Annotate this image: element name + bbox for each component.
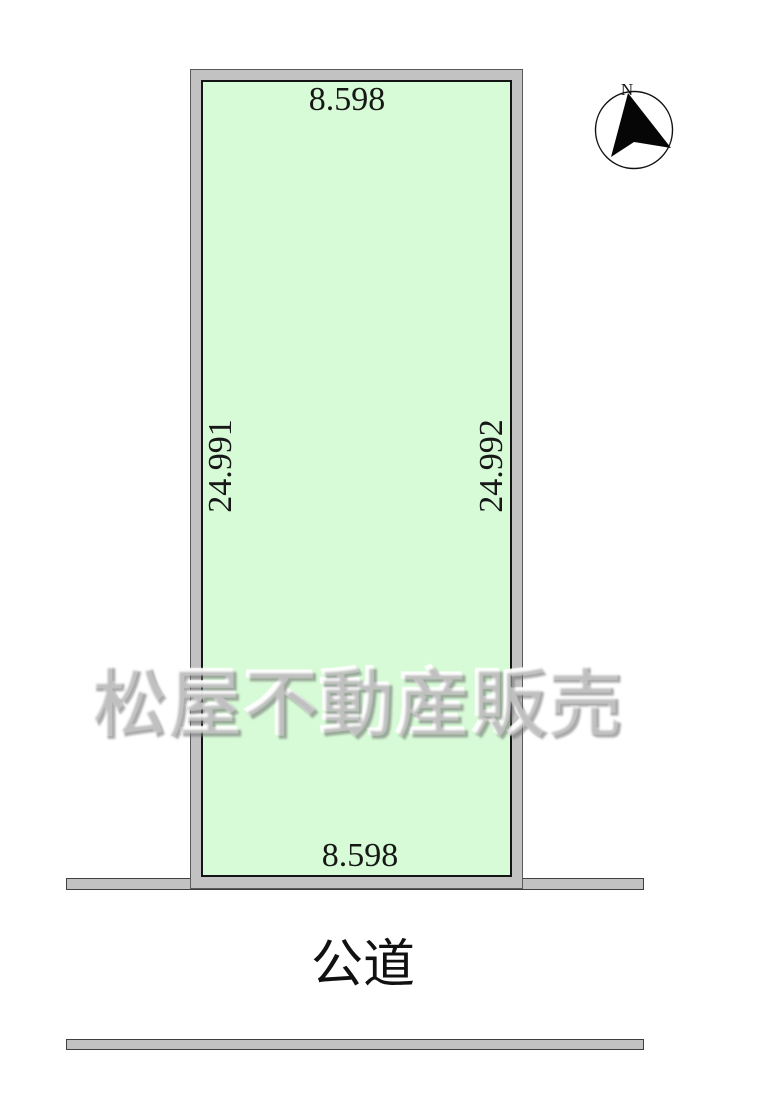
north-compass-icon: N [588, 76, 683, 171]
dimension-left: 24.991 [204, 419, 238, 513]
land-plot-area [201, 80, 512, 877]
dimension-bottom: 8.598 [322, 839, 399, 873]
lot-diagram-canvas: 8.598 8.598 24.991 24.992 松屋不動産販売 公道 N [0, 0, 760, 1120]
north-label: N [621, 80, 633, 99]
dimension-top: 8.598 [309, 83, 386, 117]
road-edge-line-far [66, 1039, 644, 1050]
road-label: 公道 [311, 936, 415, 996]
dimension-right: 24.992 [475, 419, 509, 513]
